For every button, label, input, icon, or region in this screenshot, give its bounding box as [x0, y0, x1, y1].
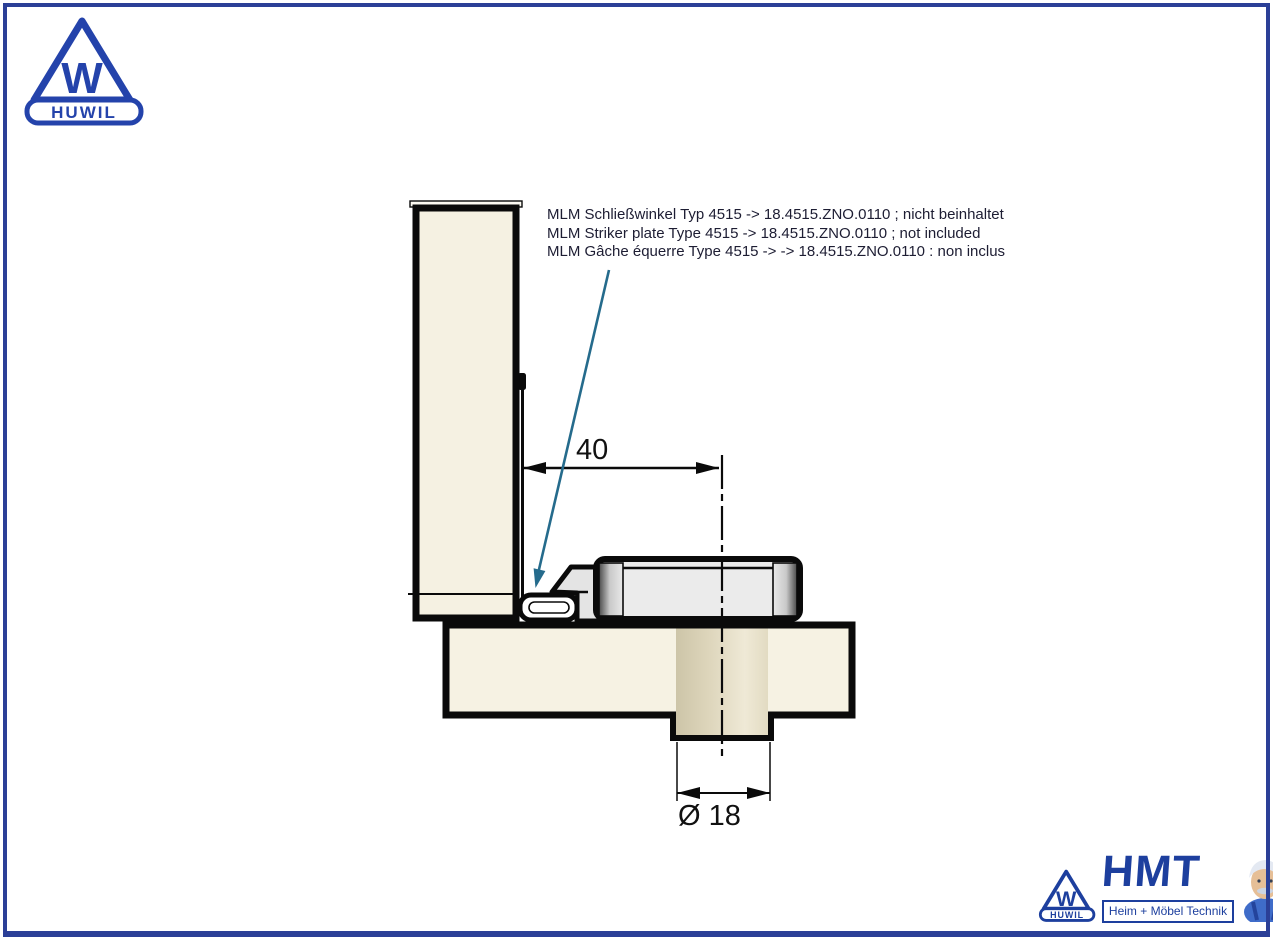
annotation-line-fr: MLM Gâche équerre Type 4515 -> -> 18.451…	[547, 243, 1005, 262]
hmt-portrait-icon	[1240, 854, 1273, 922]
dimension-diameter-label: Ø 18	[678, 800, 741, 833]
annotation-line-de: MLM Schließwinkel Typ 4515 -> 18.4515.ZN…	[547, 206, 1005, 225]
huwil-logo: W HUWIL	[22, 14, 154, 132]
dimension-18-lines	[677, 742, 770, 801]
hmt-subtitle: Heim + Möbel Technik	[1102, 900, 1234, 923]
dimension-width-label: 40	[576, 434, 608, 467]
lock-body	[596, 559, 800, 619]
hmt-logo: W HUWIL HMT Heim + Möbel Technik	[1038, 856, 1253, 926]
huwil-wordmark: HUWIL	[1050, 910, 1084, 920]
hmt-title: HMT	[1100, 847, 1202, 897]
hmt-huwil-icon: W HUWIL	[1038, 868, 1100, 924]
huwil-monogram: W	[61, 54, 103, 103]
door-panel	[408, 201, 522, 618]
annotation-text: MLM Schließwinkel Typ 4515 -> 18.4515.ZN…	[547, 206, 1005, 262]
huwil-monogram: W	[1056, 886, 1077, 911]
leader-line	[534, 270, 609, 588]
annotation-line-en: MLM Striker plate Type 4515 -> 18.4515.Z…	[547, 225, 1005, 244]
bottom-board	[446, 625, 852, 738]
huwil-wordmark: HUWIL	[51, 103, 117, 122]
page: MLM Schließwinkel Typ 4515 -> 18.4515.ZN…	[0, 0, 1273, 939]
technical-drawing	[0, 0, 1273, 939]
dimension-40-lines	[523, 462, 719, 474]
